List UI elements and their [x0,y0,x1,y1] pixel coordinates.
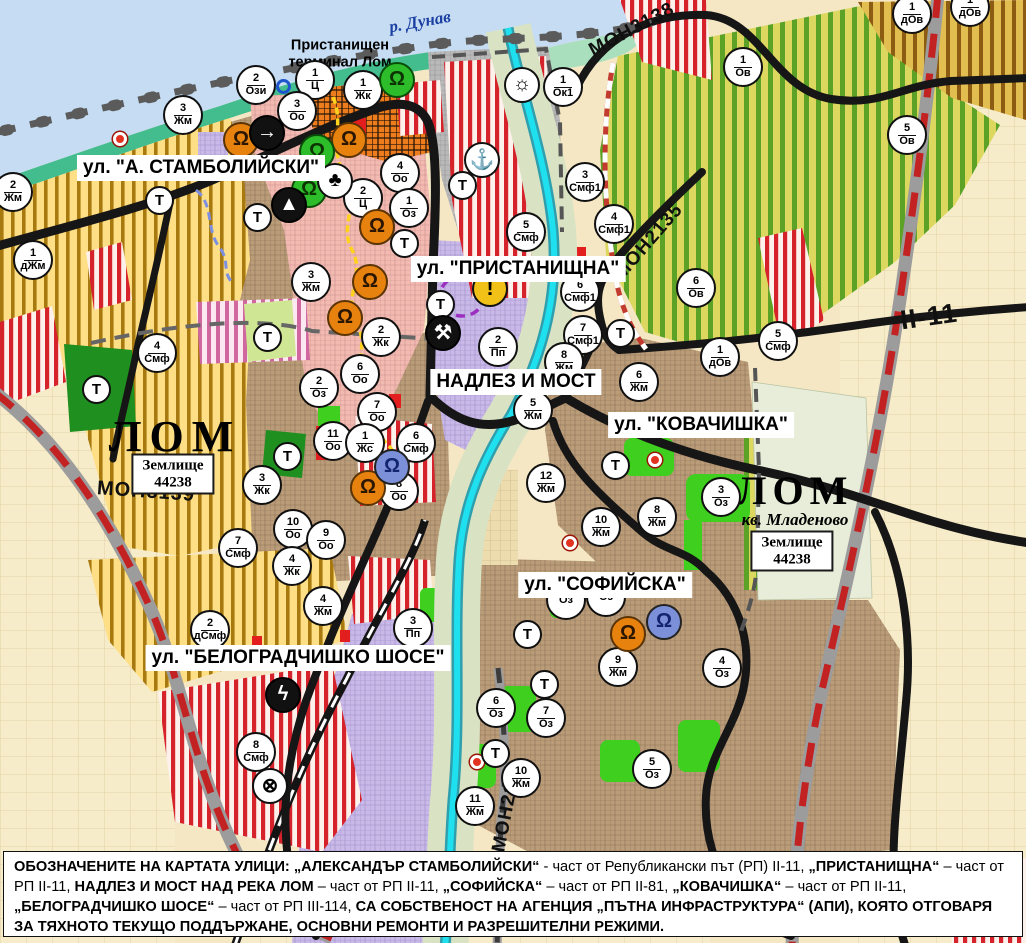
monument-icon: Ω [610,616,646,652]
transformer-marker: Т [273,442,302,471]
zone-marker: 1Оз [389,188,429,228]
red-dot [563,536,577,550]
monument-icon: Ω [352,264,388,300]
monument-icon: Ω [359,209,395,245]
transformer-marker: Т [253,323,282,352]
zone-marker: 3Смф1 [565,162,605,202]
sun-icon: ☼ [504,67,540,103]
transformer-marker: Т [481,739,510,768]
rail-icon: ⊗ [252,768,288,804]
zone-marker: 2Ози [236,65,276,105]
zone-marker: 3Жм [163,95,203,135]
anchor-icon: ⚓ [464,142,500,178]
zone-marker: 12Жм [526,463,566,503]
transformer-marker: Т [601,451,630,480]
zone-marker: 2Пп [478,327,518,367]
zone-marker: 3Пп [393,608,433,648]
street-label: ул. "А. СТАМБОЛИЙСКИ" [77,155,325,181]
zone-marker: 1Жк [343,70,383,110]
zone-marker: 4Смф1 [594,204,634,244]
street-label: ул. "СОФИЙСКА" [518,572,692,598]
monument-icon: Ω [327,300,363,336]
transformer-marker: Т [606,319,635,348]
street-label: НАДЛЕЗ И МОСТ [430,369,601,395]
street-label: ул. "БЕЛОГРАДЧИШКО ШОСЕ" [146,645,451,671]
zone-marker: 7Оз [526,698,566,738]
map-footnote: ОБОЗНАЧЕНИТЕ НА КАРТАТА УЛИЦИ: „АЛЕКСАНД… [3,851,1023,937]
zone-marker: 1дОв [700,337,740,377]
zone-marker: 6Ов [676,268,716,308]
zone-marker: 3Жк [242,465,282,505]
zone-marker: 1Ов [723,47,763,87]
zone-marker: 5Оз [632,749,672,789]
zone-marker: 5Смф [758,321,798,361]
mountain-icon: ▲ [271,187,307,223]
place-label: ЛОМкв. Младеново [737,472,854,528]
monument-icon: Ω [374,449,410,485]
transformer-marker: Т [243,203,272,232]
zone-marker: 2дСмф [190,610,230,650]
zone-marker: 5Ов [887,115,927,155]
zone-marker: 4Жк [272,546,312,586]
transformer-marker: Т [145,186,174,215]
zone-marker: 7Смф [218,528,258,568]
lightning-icon: ϟ [265,677,301,713]
zoning-map-canvas: р. Дунав Пристанищен терминал Лом ОБОЗНА… [0,0,1026,943]
zone-marker: 5Жм [513,390,553,430]
monument-icon: Ω [646,604,682,640]
zone-marker: 3Жм [291,262,331,302]
zone-marker: 4Смф [137,333,177,373]
zone-marker: 8Смф [236,732,276,772]
street-label: ул. "КОВАЧИШКА" [608,412,794,438]
zone-marker: 2Оз [299,368,339,408]
zone-marker: 5Смф [506,212,546,252]
transformer-marker: Т [513,620,542,649]
truck-icon: ⚒ [425,315,461,351]
zone-marker: 11Жм [455,786,495,826]
zone-marker: 2Жк [361,317,401,357]
land-parcel-box: Землище44238 [750,531,833,572]
zone-marker: 4Оо [380,153,420,193]
zone-marker: 8Жм [637,497,677,537]
place-label: ЛОМ [109,416,242,458]
zone-marker: 9Жм [598,647,638,687]
zone-marker: 1Ок1 [543,67,583,107]
transformer-marker: Т [82,375,111,404]
street-label: ул. "ПРИСТАНИЩНА" [411,256,626,282]
zone-marker: 1дЖм [13,240,53,280]
land-parcel-box: Землище44238 [131,454,214,495]
zone-marker: 6Жм [619,362,659,402]
monument-icon: Ω [379,62,415,98]
arrow-icon: → [249,115,285,151]
monument-icon: Ω [331,122,367,158]
zone-marker: 10Жм [501,758,541,798]
transformer-marker: Т [530,670,559,699]
zone-marker: 10Жм [581,507,621,547]
zone-marker: 3Оз [701,477,741,517]
red-dot [113,132,127,146]
zone-marker: 6Оо [340,354,380,394]
zone-marker: 4Жм [303,586,343,626]
transformer-marker: Т [390,229,419,258]
zone-marker: 4Оз [702,648,742,688]
zone-marker: 6Оз [476,688,516,728]
zone-marker: 9Оо [306,520,346,560]
red-dot [648,453,662,467]
